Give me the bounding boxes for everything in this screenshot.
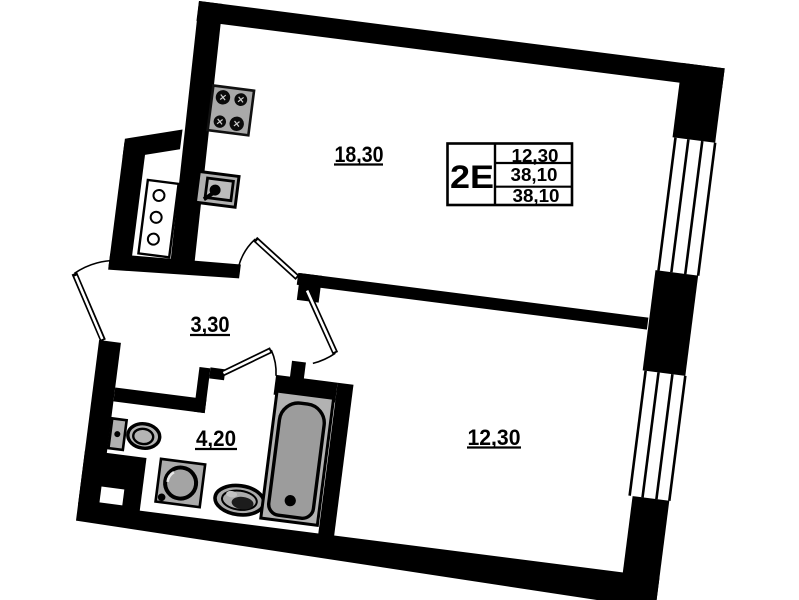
svg-text:18,30: 18,30 [335, 142, 384, 167]
svg-text:4,20: 4,20 [196, 426, 236, 451]
svg-text:38,10: 38,10 [513, 186, 560, 206]
svg-text:12,30: 12,30 [468, 425, 521, 450]
svg-text:38,10: 38,10 [511, 165, 558, 185]
svg-text:3,30: 3,30 [191, 312, 230, 337]
svg-text:2E: 2E [450, 159, 494, 195]
svg-text:12,30: 12,30 [512, 146, 559, 166]
